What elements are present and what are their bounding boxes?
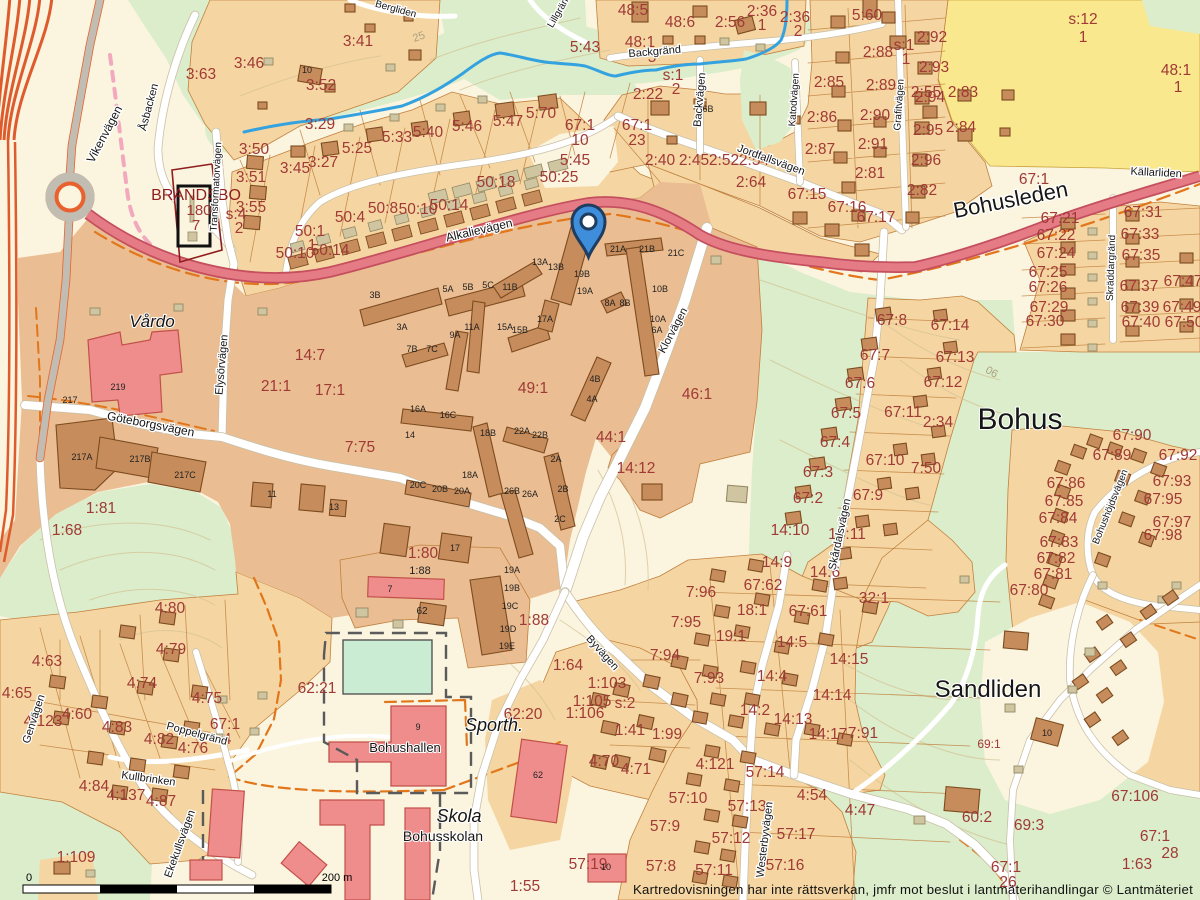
svg-text:50:14: 50:14: [311, 242, 350, 259]
svg-text:67:35: 67:35: [1122, 247, 1161, 264]
svg-text:1:64: 1:64: [553, 657, 584, 674]
svg-text:15A: 15A: [497, 322, 513, 332]
svg-text:1:68: 1:68: [52, 522, 82, 539]
svg-text:67:33: 67:33: [1121, 226, 1160, 243]
svg-text:2:88: 2:88: [863, 44, 893, 61]
svg-text:19B: 19B: [504, 583, 520, 593]
svg-text:2:56: 2:56: [715, 14, 745, 31]
svg-text:217A: 217A: [71, 452, 92, 462]
svg-text:50:4: 50:4: [335, 209, 366, 226]
svg-text:3:46: 3:46: [234, 55, 264, 72]
svg-text:67:37: 67:37: [1120, 278, 1159, 295]
svg-text:2:85: 2:85: [814, 74, 844, 91]
svg-text:10: 10: [571, 132, 589, 149]
svg-text:5C: 5C: [482, 280, 494, 290]
svg-text:67:10: 67:10: [866, 452, 905, 469]
svg-text:23: 23: [628, 132, 645, 149]
svg-text:4:76: 4:76: [178, 740, 208, 757]
svg-text:57:14: 57:14: [746, 764, 785, 781]
svg-text:32:1: 32:1: [859, 590, 889, 607]
svg-text:14:10: 14:10: [771, 522, 810, 539]
svg-text:5:45: 5:45: [560, 152, 590, 169]
svg-text:2:40: 2:40: [645, 152, 676, 169]
svg-text:49:1: 49:1: [518, 380, 548, 397]
svg-text:1:106: 1:106: [566, 705, 605, 722]
svg-text:57:10: 57:10: [669, 790, 708, 807]
svg-text:48:1: 48:1: [1161, 62, 1191, 79]
svg-text:9A: 9A: [449, 330, 460, 340]
svg-text:2:83: 2:83: [948, 84, 978, 101]
svg-text:1: 1: [902, 51, 911, 68]
svg-text:2: 2: [672, 81, 681, 98]
svg-text:62: 62: [533, 770, 543, 780]
svg-text:67:8: 67:8: [877, 312, 907, 329]
svg-text:20B: 20B: [432, 484, 448, 494]
svg-text:2:86: 2:86: [807, 109, 837, 126]
svg-text:67:9: 67:9: [853, 487, 883, 504]
svg-text:7:75: 7:75: [345, 439, 375, 456]
svg-text:Bohusskolan: Bohusskolan: [403, 828, 483, 844]
svg-text:67:61: 67:61: [789, 603, 828, 620]
svg-text:3A: 3A: [396, 322, 407, 332]
svg-text:67:17: 67:17: [857, 209, 896, 226]
svg-text:67:26: 67:26: [1029, 279, 1068, 296]
svg-text:2:82: 2:82: [907, 182, 937, 199]
svg-text:9: 9: [415, 722, 420, 732]
svg-text:5:46: 5:46: [452, 118, 482, 135]
svg-text:11B: 11B: [502, 282, 517, 292]
svg-text:67:1: 67:1: [1140, 828, 1170, 845]
svg-text:14:15: 14:15: [830, 651, 869, 668]
svg-text:67:24: 67:24: [1037, 245, 1076, 262]
svg-text:69:1: 69:1: [977, 737, 1001, 751]
svg-text:Skräddargränd: Skräddargränd: [1105, 235, 1118, 301]
svg-text:67:84: 67:84: [1039, 510, 1078, 527]
svg-text:67:82: 67:82: [1037, 550, 1076, 567]
svg-text:67:11: 67:11: [884, 404, 922, 421]
svg-text:17:1: 17:1: [315, 382, 345, 399]
svg-text:67:13: 67:13: [936, 349, 975, 366]
svg-text:2:87: 2:87: [805, 141, 835, 158]
svg-text:2C: 2C: [554, 514, 566, 524]
svg-text:19E: 19E: [499, 641, 515, 651]
svg-text:2:95: 2:95: [913, 122, 943, 139]
svg-text:2:52: 2:52: [709, 152, 739, 169]
svg-text:2:89: 2:89: [866, 77, 896, 94]
svg-text:44:1: 44:1: [596, 429, 626, 446]
svg-text:10: 10: [601, 862, 611, 872]
svg-text:2:92: 2:92: [917, 29, 947, 46]
svg-text:67:83: 67:83: [1040, 534, 1079, 551]
svg-text:13B: 13B: [548, 262, 564, 272]
svg-text:28: 28: [1161, 845, 1178, 862]
svg-text:2:91: 2:91: [858, 136, 888, 153]
svg-text:13: 13: [329, 502, 339, 512]
svg-text:4:74: 4:74: [127, 675, 158, 692]
svg-text:1:63: 1:63: [1122, 856, 1152, 873]
svg-text:10: 10: [1042, 728, 1052, 738]
svg-text:4:87: 4:87: [146, 793, 176, 810]
svg-text:19B: 19B: [574, 269, 590, 279]
svg-text:217: 217: [62, 395, 77, 405]
svg-text:1: 1: [1079, 29, 1088, 46]
svg-text:14:17: 14:17: [809, 726, 848, 743]
svg-text:4:70: 4:70: [589, 753, 620, 770]
svg-text:7:95: 7:95: [671, 614, 701, 631]
svg-text:s:2: s:2: [615, 695, 636, 712]
svg-text:67:4: 67:4: [820, 434, 851, 451]
svg-text:67:93: 67:93: [1153, 473, 1192, 490]
svg-text:3B: 3B: [369, 290, 380, 300]
svg-text:22A: 22A: [514, 426, 530, 436]
svg-text:7:91: 7:91: [848, 725, 878, 742]
svg-text:18B: 18B: [480, 428, 496, 438]
svg-text:57:17: 57:17: [777, 826, 816, 843]
svg-text:67:47: 67:47: [1164, 273, 1200, 290]
svg-text:7: 7: [192, 217, 200, 234]
svg-text:0: 0: [26, 872, 32, 884]
svg-text:4:65: 4:65: [2, 685, 32, 702]
svg-text:1:80: 1:80: [408, 545, 439, 562]
svg-text:20A: 20A: [454, 486, 470, 496]
svg-text:67:6: 67:6: [845, 375, 875, 392]
svg-text:4:79: 4:79: [156, 641, 186, 658]
svg-text:7:96: 7:96: [686, 584, 716, 601]
svg-text:67:85: 67:85: [1045, 493, 1084, 510]
svg-text:4:84: 4:84: [79, 778, 110, 795]
svg-text:50:18: 50:18: [477, 174, 516, 191]
svg-text:67:98: 67:98: [1144, 527, 1183, 544]
svg-text:5:40: 5:40: [413, 124, 444, 141]
svg-text:1: 1: [758, 17, 767, 34]
svg-text:14: 14: [405, 430, 415, 440]
svg-text:3:51: 3:51: [236, 169, 266, 186]
svg-text:19C: 19C: [502, 601, 519, 611]
svg-text:5:70: 5:70: [526, 105, 557, 122]
svg-text:14:12: 14:12: [617, 460, 656, 477]
svg-text:3:27: 3:27: [308, 154, 338, 171]
svg-text:8A: 8A: [604, 298, 615, 308]
svg-text:46:1: 46:1: [682, 386, 712, 403]
svg-text:67:95: 67:95: [1144, 491, 1183, 508]
svg-text:219: 219: [110, 382, 125, 392]
svg-text:4:54: 4:54: [797, 787, 828, 804]
svg-text:67:5: 67:5: [831, 405, 861, 422]
svg-text:16A: 16A: [410, 404, 426, 414]
svg-text:4:80: 4:80: [155, 600, 186, 617]
svg-text:7:94: 7:94: [650, 647, 681, 664]
svg-text:67:50: 67:50: [1165, 314, 1200, 331]
svg-text:5A: 5A: [442, 284, 453, 294]
svg-text:11A: 11A: [464, 322, 479, 332]
svg-text:3:29: 3:29: [305, 116, 335, 133]
svg-text:6A: 6A: [651, 325, 662, 335]
svg-text:1:88: 1:88: [409, 565, 430, 577]
svg-text:4:121: 4:121: [696, 756, 735, 773]
svg-text:19A: 19A: [504, 565, 520, 575]
svg-text:21B: 21B: [639, 244, 655, 254]
svg-text:7B: 7B: [406, 344, 417, 354]
svg-text:16C: 16C: [440, 410, 457, 420]
svg-text:6B: 6B: [702, 104, 713, 114]
svg-text:21:1: 21:1: [261, 378, 291, 395]
svg-text:19D: 19D: [500, 624, 517, 634]
svg-text:217B: 217B: [129, 454, 150, 464]
svg-text:1:99: 1:99: [652, 726, 682, 743]
svg-text:15B: 15B: [512, 325, 528, 335]
svg-text:1:103: 1:103: [588, 675, 627, 692]
svg-text:22B: 22B: [532, 430, 548, 440]
svg-text:2:90: 2:90: [860, 107, 891, 124]
svg-text:2:34: 2:34: [923, 414, 954, 431]
svg-text:3:52: 3:52: [306, 77, 336, 94]
svg-text:14:7: 14:7: [295, 347, 325, 364]
svg-text:18A: 18A: [462, 470, 478, 480]
svg-text:17: 17: [450, 543, 460, 553]
svg-text:1:41: 1:41: [615, 722, 645, 739]
svg-text:50:25: 50:25: [540, 169, 579, 186]
svg-text:3:63: 3:63: [186, 66, 216, 83]
svg-text:14:9: 14:9: [762, 554, 792, 571]
svg-text:1:81: 1:81: [86, 500, 116, 517]
svg-text:57:12: 57:12: [712, 830, 751, 847]
svg-text:5B: 5B: [462, 282, 473, 292]
svg-text:67:30: 67:30: [1026, 313, 1065, 330]
svg-text:48:6: 48:6: [665, 14, 695, 31]
svg-text:5:60: 5:60: [852, 7, 883, 24]
svg-text:57:11: 57:11: [695, 862, 733, 879]
svg-text:4:60: 4:60: [62, 706, 93, 723]
svg-text:s:12: s:12: [1068, 11, 1097, 28]
svg-text:2: 2: [235, 220, 244, 237]
svg-text:10: 10: [302, 65, 312, 75]
svg-text:10B: 10B: [652, 284, 668, 294]
svg-text:57:16: 57:16: [766, 857, 805, 874]
svg-text:67:62: 67:62: [744, 577, 783, 594]
svg-text:69:3: 69:3: [1014, 817, 1044, 834]
svg-text:Kartredovisningen har inte rät: Kartredovisningen har inte rättsverkan, …: [633, 882, 1193, 897]
svg-text:67:12: 67:12: [924, 374, 963, 391]
svg-text:2B: 2B: [557, 484, 568, 494]
svg-text:5:47: 5:47: [493, 113, 523, 130]
svg-text:7C: 7C: [426, 344, 438, 354]
svg-text:67:3: 67:3: [803, 464, 833, 481]
svg-text:50:14: 50:14: [430, 197, 469, 214]
svg-text:Sandliden: Sandliden: [935, 676, 1042, 703]
svg-text:67:106: 67:106: [1111, 788, 1158, 805]
svg-text:26A: 26A: [522, 489, 538, 499]
svg-text:Skola: Skola: [436, 806, 481, 826]
svg-text:7: 7: [387, 584, 392, 594]
svg-text:2:96: 2:96: [911, 152, 941, 169]
svg-text:5:43: 5:43: [570, 39, 600, 56]
svg-text:7:50: 7:50: [911, 460, 942, 477]
svg-text:Bohus: Bohus: [977, 403, 1062, 436]
svg-text:14:4: 14:4: [757, 668, 788, 685]
svg-text:67:2: 67:2: [793, 490, 823, 507]
svg-text:11: 11: [267, 489, 276, 499]
svg-text:3:45: 3:45: [280, 160, 310, 177]
svg-text:26B: 26B: [504, 486, 520, 496]
svg-text:4:75: 4:75: [192, 690, 222, 707]
svg-text:67:80: 67:80: [1010, 582, 1049, 599]
svg-text:62: 62: [416, 606, 428, 617]
svg-text:2:22: 2:22: [633, 86, 663, 103]
svg-text:4:63: 4:63: [32, 653, 62, 670]
svg-text:4B: 4B: [589, 374, 600, 384]
svg-text:4:137: 4:137: [107, 787, 146, 804]
svg-text:13A: 13A: [532, 257, 548, 267]
svg-text:18:1: 18:1: [737, 602, 767, 619]
svg-text:67:92: 67:92: [1159, 447, 1198, 464]
svg-text:62:21: 62:21: [298, 680, 337, 697]
svg-text:2:84: 2:84: [946, 119, 977, 136]
svg-text:67:31: 67:31: [1124, 204, 1163, 221]
svg-text:21A: 21A: [610, 244, 626, 254]
svg-text:2A: 2A: [550, 454, 561, 464]
svg-text:60:2: 60:2: [962, 809, 992, 826]
svg-text:2: 2: [794, 23, 803, 40]
svg-text:10A: 10A: [650, 314, 666, 324]
svg-text:8B: 8B: [619, 298, 630, 308]
svg-text:1:109: 1:109: [57, 849, 96, 866]
svg-text:1:55: 1:55: [510, 878, 540, 895]
svg-text:1:88: 1:88: [519, 612, 549, 629]
svg-text:20C: 20C: [410, 480, 427, 490]
svg-text:5:25: 5:25: [342, 140, 372, 157]
svg-text:17A: 17A: [537, 314, 553, 324]
svg-text:67:90: 67:90: [1113, 427, 1152, 444]
svg-text:67:86: 67:86: [1047, 475, 1086, 492]
svg-text:2:45: 2:45: [679, 152, 709, 169]
svg-text:19:1: 19:1: [716, 628, 746, 645]
svg-text:2:94: 2:94: [915, 89, 946, 106]
svg-text:5:33: 5:33: [382, 129, 412, 146]
svg-text:67:21: 67:21: [1041, 210, 1080, 227]
svg-text:1: 1: [308, 237, 317, 254]
svg-text:4:82: 4:82: [144, 731, 174, 748]
svg-text:67:89: 67:89: [1093, 447, 1132, 464]
svg-text:4:71: 4:71: [621, 761, 651, 778]
svg-text:3:50: 3:50: [239, 141, 270, 158]
svg-text:14:13: 14:13: [774, 711, 813, 728]
svg-text:Vårdo: Vårdo: [129, 312, 174, 331]
svg-text:2:64: 2:64: [736, 174, 767, 191]
svg-text:67:22: 67:22: [1037, 227, 1076, 244]
svg-text:1: 1: [1174, 79, 1183, 96]
svg-text:57:9: 57:9: [650, 818, 680, 835]
svg-text:4A: 4A: [586, 394, 597, 404]
svg-text:57:8: 57:8: [646, 858, 676, 875]
svg-text:21C: 21C: [668, 248, 685, 258]
svg-text:2:81: 2:81: [855, 165, 885, 182]
svg-text:67:7: 67:7: [860, 347, 890, 364]
svg-text:2:93: 2:93: [919, 59, 949, 76]
svg-text:19A: 19A: [577, 286, 593, 296]
svg-text:3:41: 3:41: [343, 33, 373, 50]
svg-text:67:81: 67:81: [1034, 566, 1073, 583]
svg-text:14:14: 14:14: [813, 687, 852, 704]
svg-text:14:2: 14:2: [740, 702, 770, 719]
svg-text:67:14: 67:14: [931, 317, 970, 334]
svg-text:57:13: 57:13: [728, 798, 767, 815]
svg-text:50:8: 50:8: [368, 200, 398, 217]
svg-text:4:83: 4:83: [102, 719, 132, 736]
svg-text:217C: 217C: [174, 470, 196, 480]
svg-text:Sporth.: Sporth.: [465, 715, 523, 735]
svg-text:67:15: 67:15: [788, 186, 827, 203]
svg-text:4:47: 4:47: [845, 802, 875, 819]
svg-text:Bohushallen: Bohushallen: [369, 740, 441, 755]
svg-text:7:93: 7:93: [694, 670, 724, 687]
svg-text:200 m: 200 m: [322, 872, 353, 884]
svg-text:48:5: 48:5: [618, 2, 648, 19]
svg-text:14:5: 14:5: [777, 634, 807, 651]
svg-text:67:40: 67:40: [1122, 314, 1161, 331]
